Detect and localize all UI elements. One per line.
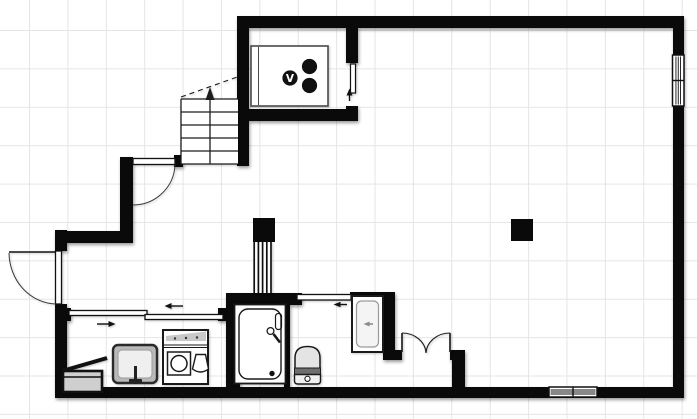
toilet-bowl	[295, 347, 320, 372]
flush-button-icon	[305, 376, 310, 381]
laundry-basket-icon	[193, 355, 209, 373]
wall-closet-left	[383, 350, 402, 360]
stove-burner-glyph: V	[286, 73, 295, 85]
toilet-sliding-door	[297, 295, 351, 308]
floorplan-canvas: V	[0, 0, 697, 419]
door-swing-arc	[9, 253, 56, 304]
door-swing-arc	[426, 333, 450, 353]
door-swing-arc	[133, 165, 175, 205]
structural-columns	[253, 218, 533, 242]
washroom-sink	[113, 345, 157, 384]
wall-stair-kitchen-left	[237, 16, 249, 166]
kitchen-sliding-door	[347, 64, 356, 101]
stove-burner-icon	[302, 78, 317, 93]
wall-kitchen-right-upper	[346, 16, 358, 63]
sliding-panel	[69, 311, 147, 316]
duct-shaft	[253, 242, 273, 293]
window-right-wall	[673, 55, 685, 106]
tub-surround	[235, 305, 286, 384]
washer-knob-icon	[185, 337, 187, 339]
faucet-base	[129, 379, 142, 383]
storage-box-open-lid	[62, 358, 107, 392]
sliding-panel	[351, 64, 356, 93]
faucet-handle-icon	[267, 328, 274, 335]
column-center	[253, 218, 275, 242]
slide-arrow-right-icon	[97, 321, 116, 327]
door-swing-arc	[402, 333, 426, 353]
stove-burner-icon	[302, 59, 317, 74]
wall-entry-vertical	[120, 157, 133, 243]
kitchen-counter: V	[251, 46, 328, 106]
bathtub	[235, 305, 286, 384]
door-leaf	[133, 159, 175, 165]
open-lid	[62, 358, 107, 371]
toilet	[295, 347, 321, 385]
wall-toilet-right	[383, 292, 395, 360]
hall-swing-door	[133, 159, 175, 206]
washer-knob-icon	[196, 336, 198, 338]
wall-kitchen-bottom	[237, 109, 358, 121]
washer-knob-icon	[174, 337, 176, 339]
sliding-panel	[297, 295, 351, 301]
wall-closet-right-vertical	[452, 350, 465, 390]
box-body	[63, 371, 102, 392]
sliding-panel	[145, 315, 223, 320]
drain-icon	[269, 371, 274, 376]
door-leaf	[56, 251, 62, 304]
staircase	[181, 76, 240, 164]
toilet-seat-hinge	[295, 368, 321, 375]
wall-kitchen-right-lower	[346, 106, 358, 121]
wall-top	[237, 16, 684, 28]
slide-arrow-left-icon	[334, 302, 348, 307]
window-bottom-wall	[549, 387, 597, 397]
column-right	[511, 219, 533, 241]
floorplan-drawing: V	[0, 0, 697, 419]
washroom-double-sliding-door	[69, 303, 223, 327]
hand-wash-basin	[352, 296, 383, 352]
washer-drum-icon	[171, 356, 187, 372]
wall-bath-top	[226, 293, 302, 305]
slide-arrow-left-icon	[165, 303, 184, 309]
washing-machine	[163, 330, 209, 384]
closet-double-swing-door	[402, 333, 450, 353]
windows	[549, 55, 684, 397]
stair-up-arrow-icon	[206, 87, 215, 100]
entrance-swing-door	[9, 251, 62, 304]
